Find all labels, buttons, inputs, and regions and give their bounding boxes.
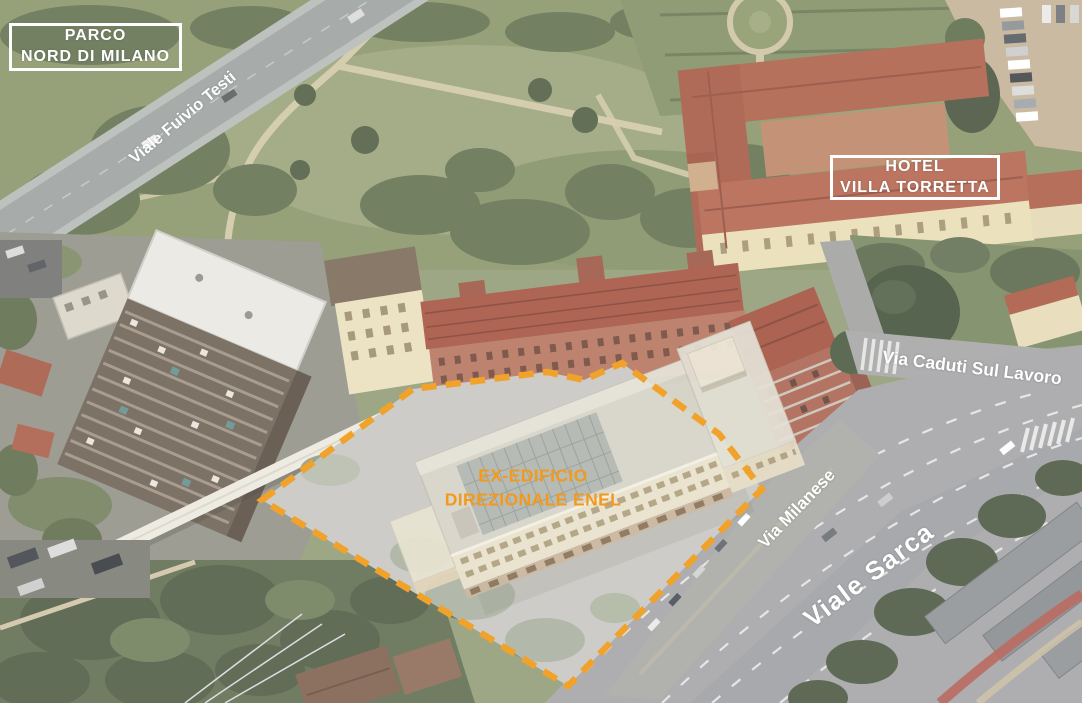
hotel-villa-torretta-label-box: HOTEL VILLA TORRETTA	[830, 155, 1000, 200]
hotel-line2: VILLA TORRETTA	[833, 178, 997, 199]
parco-nord-line2: NORD DI MILANO	[12, 47, 179, 68]
parco-nord-label-box: PARCO NORD DI MILANO	[9, 23, 182, 71]
parco-nord-line1: PARCO	[12, 26, 179, 47]
site-label: EX-EDIFICIO DIREZIONALE ENEL	[445, 464, 622, 511]
hotel-line1: HOTEL	[833, 157, 997, 178]
site-label-line2: DIREZIONALE ENEL	[445, 488, 622, 512]
site-label-line1: EX-EDIFICIO	[445, 464, 622, 488]
annotated-aerial-view: PARCO NORD DI MILANO HOTEL VILLA TORRETT…	[0, 0, 1082, 703]
